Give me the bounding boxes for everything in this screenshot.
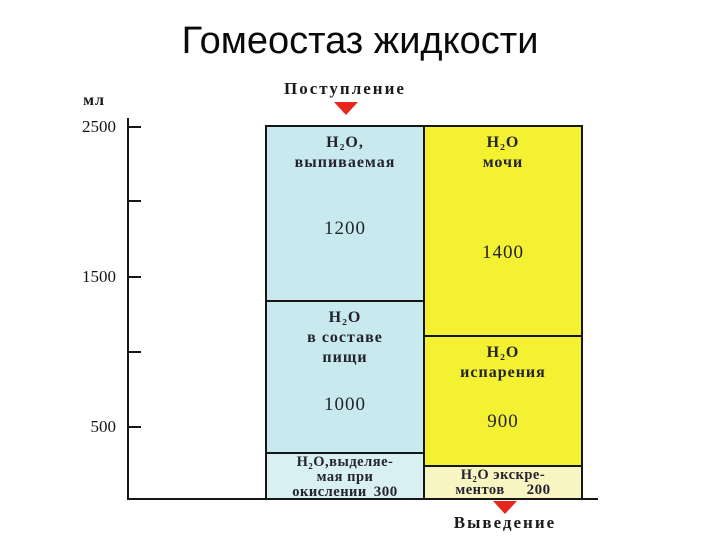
- block-label: H₂O,выделяе- мая при окислении 300: [267, 454, 423, 498]
- y-axis-unit-label: мл: [52, 92, 105, 110]
- intake-header-label: Поступление: [255, 79, 435, 99]
- block-label: H₂O в составе пищи: [267, 302, 423, 368]
- y-axis-tick-2500: [129, 126, 141, 128]
- output-column: H₂O мочи 1400 H₂O испарения 900 H₂O экск…: [423, 125, 583, 500]
- intake-column: H₂O, выпиваемая 1200 H₂O в составе пищи …: [265, 125, 425, 500]
- block-value: 200: [527, 483, 551, 498]
- intake-block-drinking-water: H₂O, выпиваемая 1200: [267, 127, 423, 300]
- output-block-evaporation-water: H₂O испарения 900: [425, 335, 581, 465]
- block-value: 1200: [267, 218, 423, 240]
- output-block-urine-water: H₂O мочи 1400: [425, 127, 581, 335]
- block-value: 1000: [267, 394, 423, 416]
- slide: Гомеостаз жидкости Поступление мл 2500 1…: [0, 0, 720, 540]
- block-label: H₂O мочи: [425, 127, 581, 173]
- block-value: 1400: [425, 242, 581, 264]
- output-footer-label: Выведение: [415, 513, 595, 533]
- page-title: Гомеостаз жидкости: [0, 20, 720, 63]
- block-label: H₂O экскре- ментов 200: [425, 467, 581, 498]
- intake-arrow-down-icon: [334, 102, 358, 115]
- intake-block-food-water: H₂O в составе пищи 1000: [267, 300, 423, 452]
- y-axis-tick-1000: [129, 351, 141, 353]
- y-axis-tick-2000: [129, 200, 141, 202]
- y-axis-tick-label-500: 500: [52, 417, 116, 437]
- y-axis-tick-label-2500: 2500: [52, 117, 116, 137]
- block-value: 300: [374, 485, 398, 498]
- output-block-excrement-water: H₂O экскре- ментов 200: [425, 465, 581, 498]
- block-value: 900: [425, 411, 581, 433]
- y-axis-tick-500: [129, 426, 141, 428]
- intake-block-oxidation-water: H₂O,выделяе- мая при окислении 300: [267, 452, 423, 498]
- block-label: H₂O испарения: [425, 337, 581, 383]
- y-axis-tick-1500: [129, 276, 141, 278]
- y-axis-line: [127, 118, 129, 500]
- block-label: H₂O, выпиваемая: [267, 127, 423, 173]
- y-axis-tick-label-1500: 1500: [52, 267, 116, 287]
